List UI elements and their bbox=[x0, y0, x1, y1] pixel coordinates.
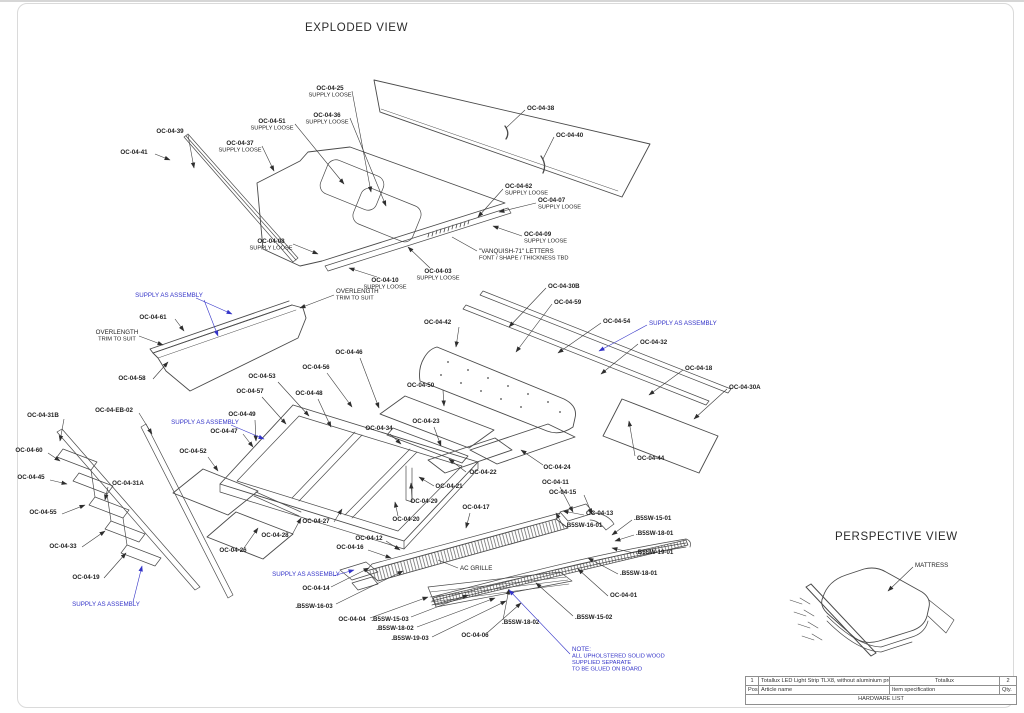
part-label: OC-04-15 bbox=[549, 489, 577, 496]
part-label: .B5SW-18-01 bbox=[636, 530, 674, 537]
part-label: OC-04-21 bbox=[435, 483, 463, 490]
part-label: OC-04-33 bbox=[49, 543, 77, 550]
part-label: OC-04-19 bbox=[72, 574, 100, 581]
qty-header: Qty. bbox=[1000, 686, 1016, 694]
part-label: OC-04-32 bbox=[640, 339, 668, 346]
leader-line bbox=[155, 154, 170, 160]
leader-line bbox=[139, 336, 163, 345]
part-label: OC-04-14 bbox=[302, 585, 330, 592]
leader-line bbox=[62, 505, 85, 514]
part-label: OC-04-04 bbox=[338, 616, 366, 623]
leader-line bbox=[536, 583, 573, 616]
part-label: .B5SW-15-01 bbox=[634, 515, 672, 522]
part-label: OC-04-23 bbox=[412, 418, 440, 425]
leader-line bbox=[419, 477, 434, 486]
leader-line bbox=[139, 413, 152, 434]
leader-line bbox=[417, 598, 495, 627]
part-label: .B5SW-19-01 bbox=[636, 549, 674, 556]
part-label: .B5SW-18-02 bbox=[502, 619, 540, 626]
leader-line bbox=[208, 457, 218, 471]
leader-line bbox=[612, 520, 632, 535]
part-label: OC-04-07 bbox=[538, 197, 566, 204]
part-label: OC-04-28 bbox=[261, 532, 289, 539]
leader-line bbox=[370, 597, 428, 618]
part-label: .B5SW-15-03 bbox=[371, 616, 409, 623]
part-label: OC-04-42 bbox=[424, 319, 452, 326]
part-label: OC-04-01 bbox=[610, 592, 638, 599]
part-label: OC-04-30A bbox=[729, 384, 761, 391]
leader-line bbox=[395, 502, 398, 516]
part-label: OC-04-25 bbox=[316, 85, 344, 92]
assembly-note-label: SUPPLY AS ASSEMBLY bbox=[649, 320, 717, 327]
part-label: OC-04-59 bbox=[554, 299, 582, 306]
table-title: HARDWARE LIST bbox=[746, 695, 1016, 704]
part-bed-frame bbox=[220, 405, 478, 549]
part-label: .B5SW-19-03 bbox=[391, 635, 429, 642]
leader-line bbox=[204, 300, 218, 336]
leader-line bbox=[336, 571, 403, 604]
part-right-rails bbox=[463, 291, 731, 405]
table-row: 1 Totallux LED Light Strip TLX8, without… bbox=[746, 677, 1016, 686]
part-sub-label: TO BE GLUED ON BOARD bbox=[572, 667, 642, 673]
leader-line bbox=[499, 203, 536, 212]
part-label: OC-04-09 bbox=[524, 231, 552, 238]
leader-line bbox=[443, 390, 444, 406]
part-label: OC-04-30B bbox=[548, 283, 580, 290]
leader-line bbox=[360, 358, 379, 408]
part-label: OC-04-57 bbox=[236, 388, 264, 395]
part-sub-label: TRIM TO SUIT bbox=[98, 337, 136, 343]
leader-line bbox=[104, 553, 126, 578]
leader-line bbox=[262, 397, 286, 424]
leader-line bbox=[262, 146, 274, 171]
part-label: OC-04-03 bbox=[424, 268, 452, 275]
leader-line bbox=[509, 288, 546, 327]
part-label: OC-04-58 bbox=[118, 375, 146, 382]
assembly-note-label: SUPPLY AS ASSEMBLY bbox=[135, 292, 203, 299]
part-label: OC-04-37 bbox=[226, 140, 254, 147]
article-name-header: Article name bbox=[759, 686, 890, 694]
leader-line bbox=[350, 118, 386, 206]
leader-line bbox=[629, 421, 635, 456]
part-label: OVERLENGTH bbox=[336, 288, 379, 295]
leader-line bbox=[558, 323, 601, 353]
part-label: OC-04-31B bbox=[27, 412, 59, 419]
part-label: OC-04-61 bbox=[139, 314, 167, 321]
part-label: OC-04-52 bbox=[179, 448, 207, 455]
part-label: OC-04-26 bbox=[219, 547, 247, 554]
part-mid-left-panel bbox=[150, 301, 306, 391]
part-label: OC-04-54 bbox=[603, 318, 631, 325]
assembly-note-label: SUPPLY AS ASSEMBLY bbox=[72, 601, 140, 608]
part-label: OC-04-47 bbox=[210, 428, 238, 435]
article-name-value: Totallux LED Light Strip TLX8, without a… bbox=[759, 677, 890, 685]
leader-line bbox=[408, 247, 430, 268]
part-label: OC-04-31A bbox=[112, 480, 144, 487]
part-label: OC-04-EB-02 bbox=[95, 407, 133, 414]
part-label: OC-04-38 bbox=[527, 105, 555, 112]
leader-line bbox=[543, 137, 554, 159]
part-sub-label: SUPPLY LOOSE bbox=[505, 191, 548, 197]
part-label: AC GRILLE bbox=[460, 565, 492, 572]
part-label: OC-04-11 bbox=[542, 479, 569, 486]
qty-value: 2 bbox=[1000, 677, 1016, 685]
part-label: .B5SW-18-02 bbox=[376, 625, 414, 632]
part-label: OC-04-16 bbox=[336, 544, 364, 551]
part-sub-label: SUPPLIED SEPARATE bbox=[572, 660, 631, 666]
leader-line bbox=[601, 344, 638, 374]
part-label: OC-04-44 bbox=[637, 455, 665, 462]
part-label: OC-04-51 bbox=[258, 118, 286, 125]
line-art-canvas: OC-04-25SUPPLY LOOSEOC-04-36SUPPLY LOOSE… bbox=[0, 0, 1024, 713]
part-label: OC-04-34 bbox=[365, 425, 393, 432]
leader-line bbox=[82, 531, 105, 547]
part-label: OC-04-48 bbox=[295, 390, 323, 397]
exploded-view-drawing bbox=[57, 80, 731, 607]
part-sub-label: SUPPLY LOOSE bbox=[524, 239, 567, 245]
leader-line bbox=[615, 535, 634, 541]
leader-line bbox=[48, 453, 60, 461]
part-label: OC-04-53 bbox=[248, 373, 276, 380]
item-spec-value: Totallux bbox=[890, 677, 1000, 685]
perspective-view-drawing bbox=[790, 568, 954, 656]
part-label: OC-04-41 bbox=[120, 149, 148, 156]
part-label: OC-04-55 bbox=[29, 509, 57, 516]
leader-line bbox=[300, 295, 334, 308]
hardware-list-table: 1 Totallux LED Light Strip TLX8, without… bbox=[745, 676, 1017, 705]
drawing-sheet: EXPLODED VIEW PERSPECTIVE VIEW bbox=[0, 0, 1024, 713]
part-back-panel bbox=[374, 80, 650, 197]
part-label: OC-04-17 bbox=[462, 504, 490, 511]
part-label: OC-04-36 bbox=[313, 112, 341, 119]
part-sub-label: SUPPLY LOOSE bbox=[308, 93, 351, 99]
part-label: "VANQUISH-71" LETTERS bbox=[479, 248, 554, 255]
leader-line bbox=[244, 528, 258, 548]
leader-line bbox=[368, 550, 391, 558]
part-label: OC-04-06 bbox=[461, 632, 489, 639]
leader-line bbox=[243, 434, 253, 447]
part-label: OC-04-18 bbox=[685, 365, 713, 372]
part-label: OC-04-49 bbox=[228, 411, 256, 418]
assembly-note-label: NOTE: bbox=[572, 646, 591, 653]
leader-line bbox=[278, 382, 309, 416]
assembly-note-label: SUPPLY AS ASSEMBLY bbox=[272, 571, 340, 578]
part-label: OC-04-20 bbox=[392, 516, 420, 523]
part-label: .B5SW-16-03 bbox=[295, 603, 333, 610]
part-label: OC-04-10 bbox=[371, 277, 399, 284]
part-label: OC-04-27 bbox=[302, 518, 330, 525]
part-label: OC-04-62 bbox=[505, 183, 533, 190]
pos-header: Pos. bbox=[746, 686, 759, 694]
part-sub-label: SUPPLY LOOSE bbox=[305, 120, 348, 126]
leader-line bbox=[293, 244, 318, 254]
part-label: OC-04-56 bbox=[302, 364, 330, 371]
leader-line bbox=[334, 509, 342, 522]
part-sub-label: SUPPLY LOOSE bbox=[416, 276, 459, 282]
part-label: OC-04-12 bbox=[355, 535, 383, 542]
leader-line bbox=[327, 373, 352, 407]
leader-line bbox=[694, 389, 727, 419]
part-sub-label: ALL UPHOLSTERED SOLID WOOD bbox=[572, 654, 665, 660]
part-dotted-panel bbox=[420, 347, 576, 433]
leader-line bbox=[352, 91, 371, 192]
leader-line bbox=[452, 237, 477, 251]
part-label: .B5SW-15-02 bbox=[575, 614, 613, 621]
part-label: OVERLENGTH bbox=[96, 329, 139, 336]
part-label: .B5SW-16-01 bbox=[565, 522, 603, 529]
leader-line bbox=[349, 268, 377, 277]
part-label: OC-04-46 bbox=[335, 349, 363, 356]
leader-line bbox=[390, 434, 401, 444]
leader-line bbox=[133, 566, 142, 602]
leader-line bbox=[386, 541, 400, 550]
leader-line bbox=[175, 319, 184, 331]
assembly-note-label: SUPPLY AS ASSEMBLY bbox=[171, 419, 239, 426]
part-sub-label: SUPPLY LOOSE bbox=[249, 246, 292, 252]
leader-line bbox=[50, 480, 67, 484]
leader-line bbox=[599, 325, 647, 351]
item-spec-header: Item specification bbox=[890, 686, 1000, 694]
part-sub-label: SUPPLY LOOSE bbox=[250, 126, 293, 132]
leader-line bbox=[493, 226, 522, 236]
part-label: OC-04-13 bbox=[586, 510, 614, 517]
part-label: OC-04-40 bbox=[556, 132, 584, 139]
leader-line bbox=[292, 518, 301, 535]
part-sub-label: SUPPLY LOOSE bbox=[218, 148, 261, 154]
part-label: OC-04-45 bbox=[17, 474, 45, 481]
part-ac-grille bbox=[340, 504, 614, 590]
leader-line bbox=[888, 567, 913, 591]
leader-line bbox=[649, 370, 683, 395]
table-header-row: Pos. Article name Item specification Qty… bbox=[746, 686, 1016, 695]
part-sub-label: SUPPLY LOOSE bbox=[538, 205, 581, 211]
part-label: OC-04-60 bbox=[15, 447, 43, 454]
part-label: OC-04-22 bbox=[469, 469, 497, 476]
part-label: OC-04-08 bbox=[257, 238, 285, 245]
part-label: OC-04-50 bbox=[407, 382, 435, 389]
leader-line bbox=[563, 511, 584, 515]
pos-value: 1 bbox=[746, 677, 759, 685]
part-label: OC-04-24 bbox=[543, 464, 571, 471]
leader-line bbox=[196, 298, 232, 314]
leader-line bbox=[578, 569, 608, 596]
leader-line bbox=[255, 420, 256, 441]
part-panels-52-26 bbox=[173, 469, 301, 559]
part-sub-label: TRIM TO SUIT bbox=[336, 296, 374, 302]
leader-line bbox=[456, 327, 459, 347]
part-label: .B5SW-18-01 bbox=[620, 570, 658, 577]
leader-line bbox=[478, 189, 503, 217]
part-label: OC-04-39 bbox=[156, 128, 184, 135]
leader-line bbox=[295, 124, 344, 184]
part-diagonal-strips bbox=[57, 424, 233, 598]
part-label: OC-04-29 bbox=[410, 498, 438, 505]
part-sub-label: FONT / SHAPE / THICKNESS TBD bbox=[479, 256, 568, 262]
part-label: MATTRESS bbox=[915, 562, 948, 569]
leader-line bbox=[466, 513, 470, 528]
